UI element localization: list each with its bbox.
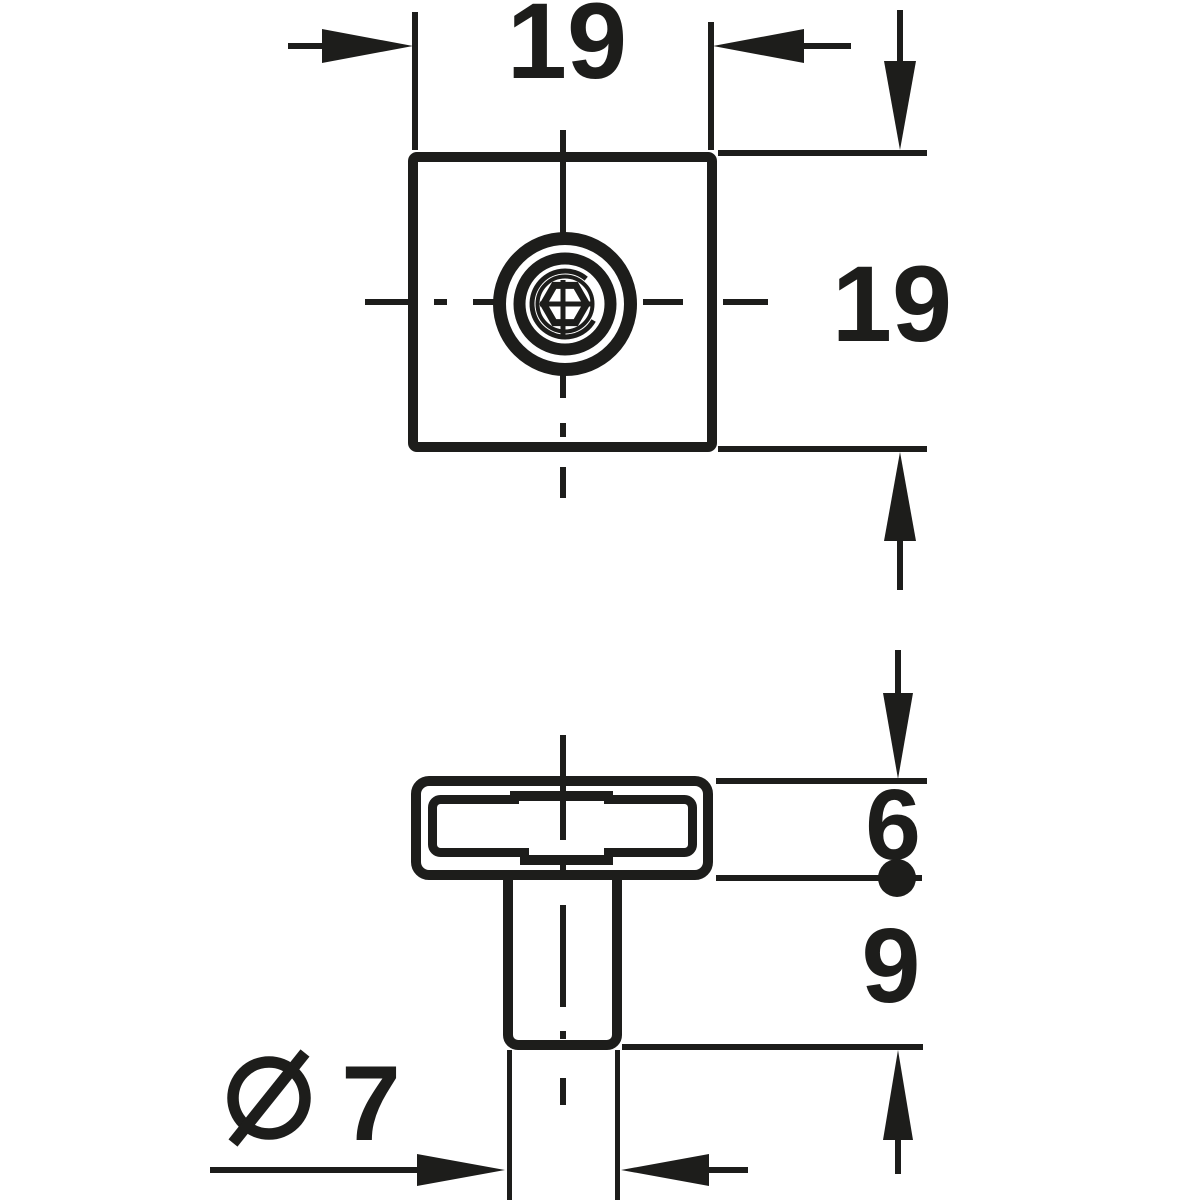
arrowhead-up-icon — [883, 1050, 913, 1140]
arrowhead-left-icon — [713, 29, 804, 63]
dimension-stem-length: 9 — [622, 907, 923, 1174]
fitting-dimension-drawing: 19 19 6 9 7 — [0, 0, 1200, 1200]
top-view — [365, 130, 768, 498]
flange-thickness-label: 6 — [865, 769, 921, 881]
slot-step-bottom — [520, 855, 613, 865]
plate-width-label: 19 — [507, 0, 627, 101]
arrowhead-down-icon — [884, 61, 916, 150]
stem-diameter-label: 7 — [341, 1043, 401, 1163]
arrowhead-up-icon — [884, 452, 916, 541]
stem-continuation-lines — [510, 1050, 618, 1200]
dimension-plate-width: 19 — [288, 0, 851, 150]
slot-step-bottom-gap — [529, 848, 604, 856]
front-view — [416, 735, 708, 1200]
arrowhead-down-icon — [883, 693, 913, 779]
arrowhead-right-icon — [322, 29, 413, 63]
plate-height-label: 19 — [832, 243, 952, 364]
diameter-symbol-icon — [233, 1053, 305, 1143]
dimension-stem-diameter: 7 — [210, 1043, 748, 1186]
dimension-flange-thickness: 6 — [716, 650, 927, 897]
arrowhead-right-icon — [417, 1154, 505, 1186]
technical-drawing-page: 19 19 6 9 7 — [0, 0, 1200, 1200]
stem-length-label: 9 — [862, 907, 921, 1025]
arrowhead-left-icon — [621, 1154, 709, 1186]
